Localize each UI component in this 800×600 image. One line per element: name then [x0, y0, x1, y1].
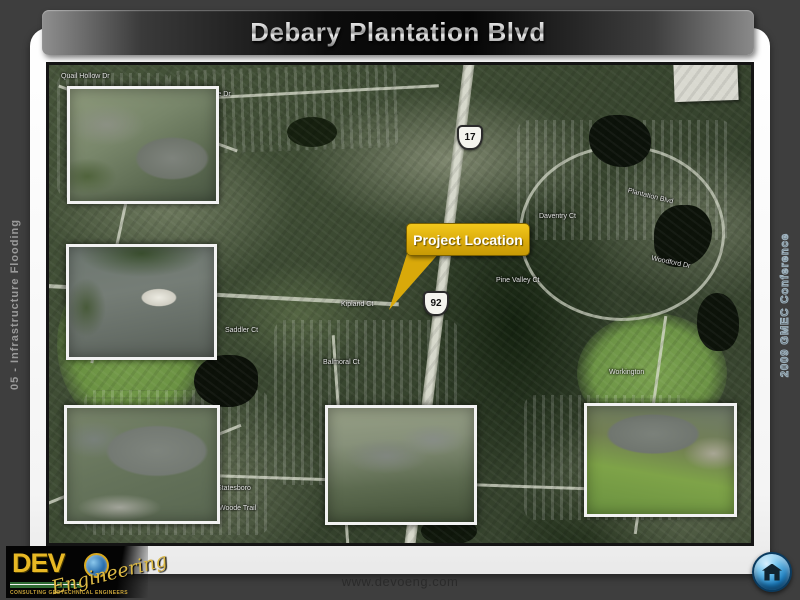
aerial-map: Quail Hollow Dr Kingslake Dr Plantation …	[46, 62, 754, 546]
route-number: 92	[430, 298, 441, 309]
devo-logo: DEV Engineering CONSULTING GEOTECHNICAL …	[6, 546, 148, 598]
route-shield-17: 17	[457, 125, 483, 150]
title-banner: Debary Plantation Blvd	[42, 10, 754, 55]
street-label: Woode Trail	[219, 505, 256, 512]
inset-photo-flooded-neighborhood	[325, 405, 477, 525]
section-tab-right-label: 2009 GMEC Conference	[779, 233, 791, 377]
street-label: Balmoral Ct	[323, 359, 360, 366]
route-number: 17	[464, 132, 475, 143]
map-lake	[697, 293, 739, 351]
inset-photo-flooded-wetland	[67, 86, 219, 204]
section-tab-left-label: 05 - Infrastructure Flooding	[9, 219, 21, 390]
street-label: Statesboro	[217, 485, 251, 492]
devo-tagline: CONSULTING GEOTECHNICAL ENGINEERS	[10, 590, 128, 596]
map-lake	[194, 355, 258, 407]
street-label: Workington	[609, 369, 644, 376]
inset-photo-flooded-highway	[64, 405, 220, 524]
inset-photo-flooded-home	[66, 244, 217, 360]
map-large-building	[673, 62, 738, 102]
map-lake	[287, 117, 337, 147]
route-shield-92: 92	[423, 291, 449, 316]
street-label: Pine Valley Ct	[496, 277, 539, 284]
project-location-callout: Project Location	[406, 223, 530, 256]
street-label: Kipland Ct	[341, 301, 373, 308]
home-icon	[762, 564, 782, 581]
street-label: Saddler Ct	[225, 327, 258, 334]
slide-title: Debary Plantation Blvd	[250, 17, 546, 48]
project-location-label: Project Location	[413, 232, 523, 248]
street-label: Quail Hollow Dr	[61, 73, 110, 80]
section-tab-right: 2009 GMEC Conference	[771, 60, 799, 550]
inset-photo-flooded-golf-course	[584, 403, 737, 517]
devo-brand-text: DEV	[12, 548, 65, 579]
street-label: Daventry Ct	[539, 213, 576, 220]
section-tab-left: 05 - Infrastructure Flooding	[1, 60, 29, 550]
home-button[interactable]	[752, 552, 792, 592]
